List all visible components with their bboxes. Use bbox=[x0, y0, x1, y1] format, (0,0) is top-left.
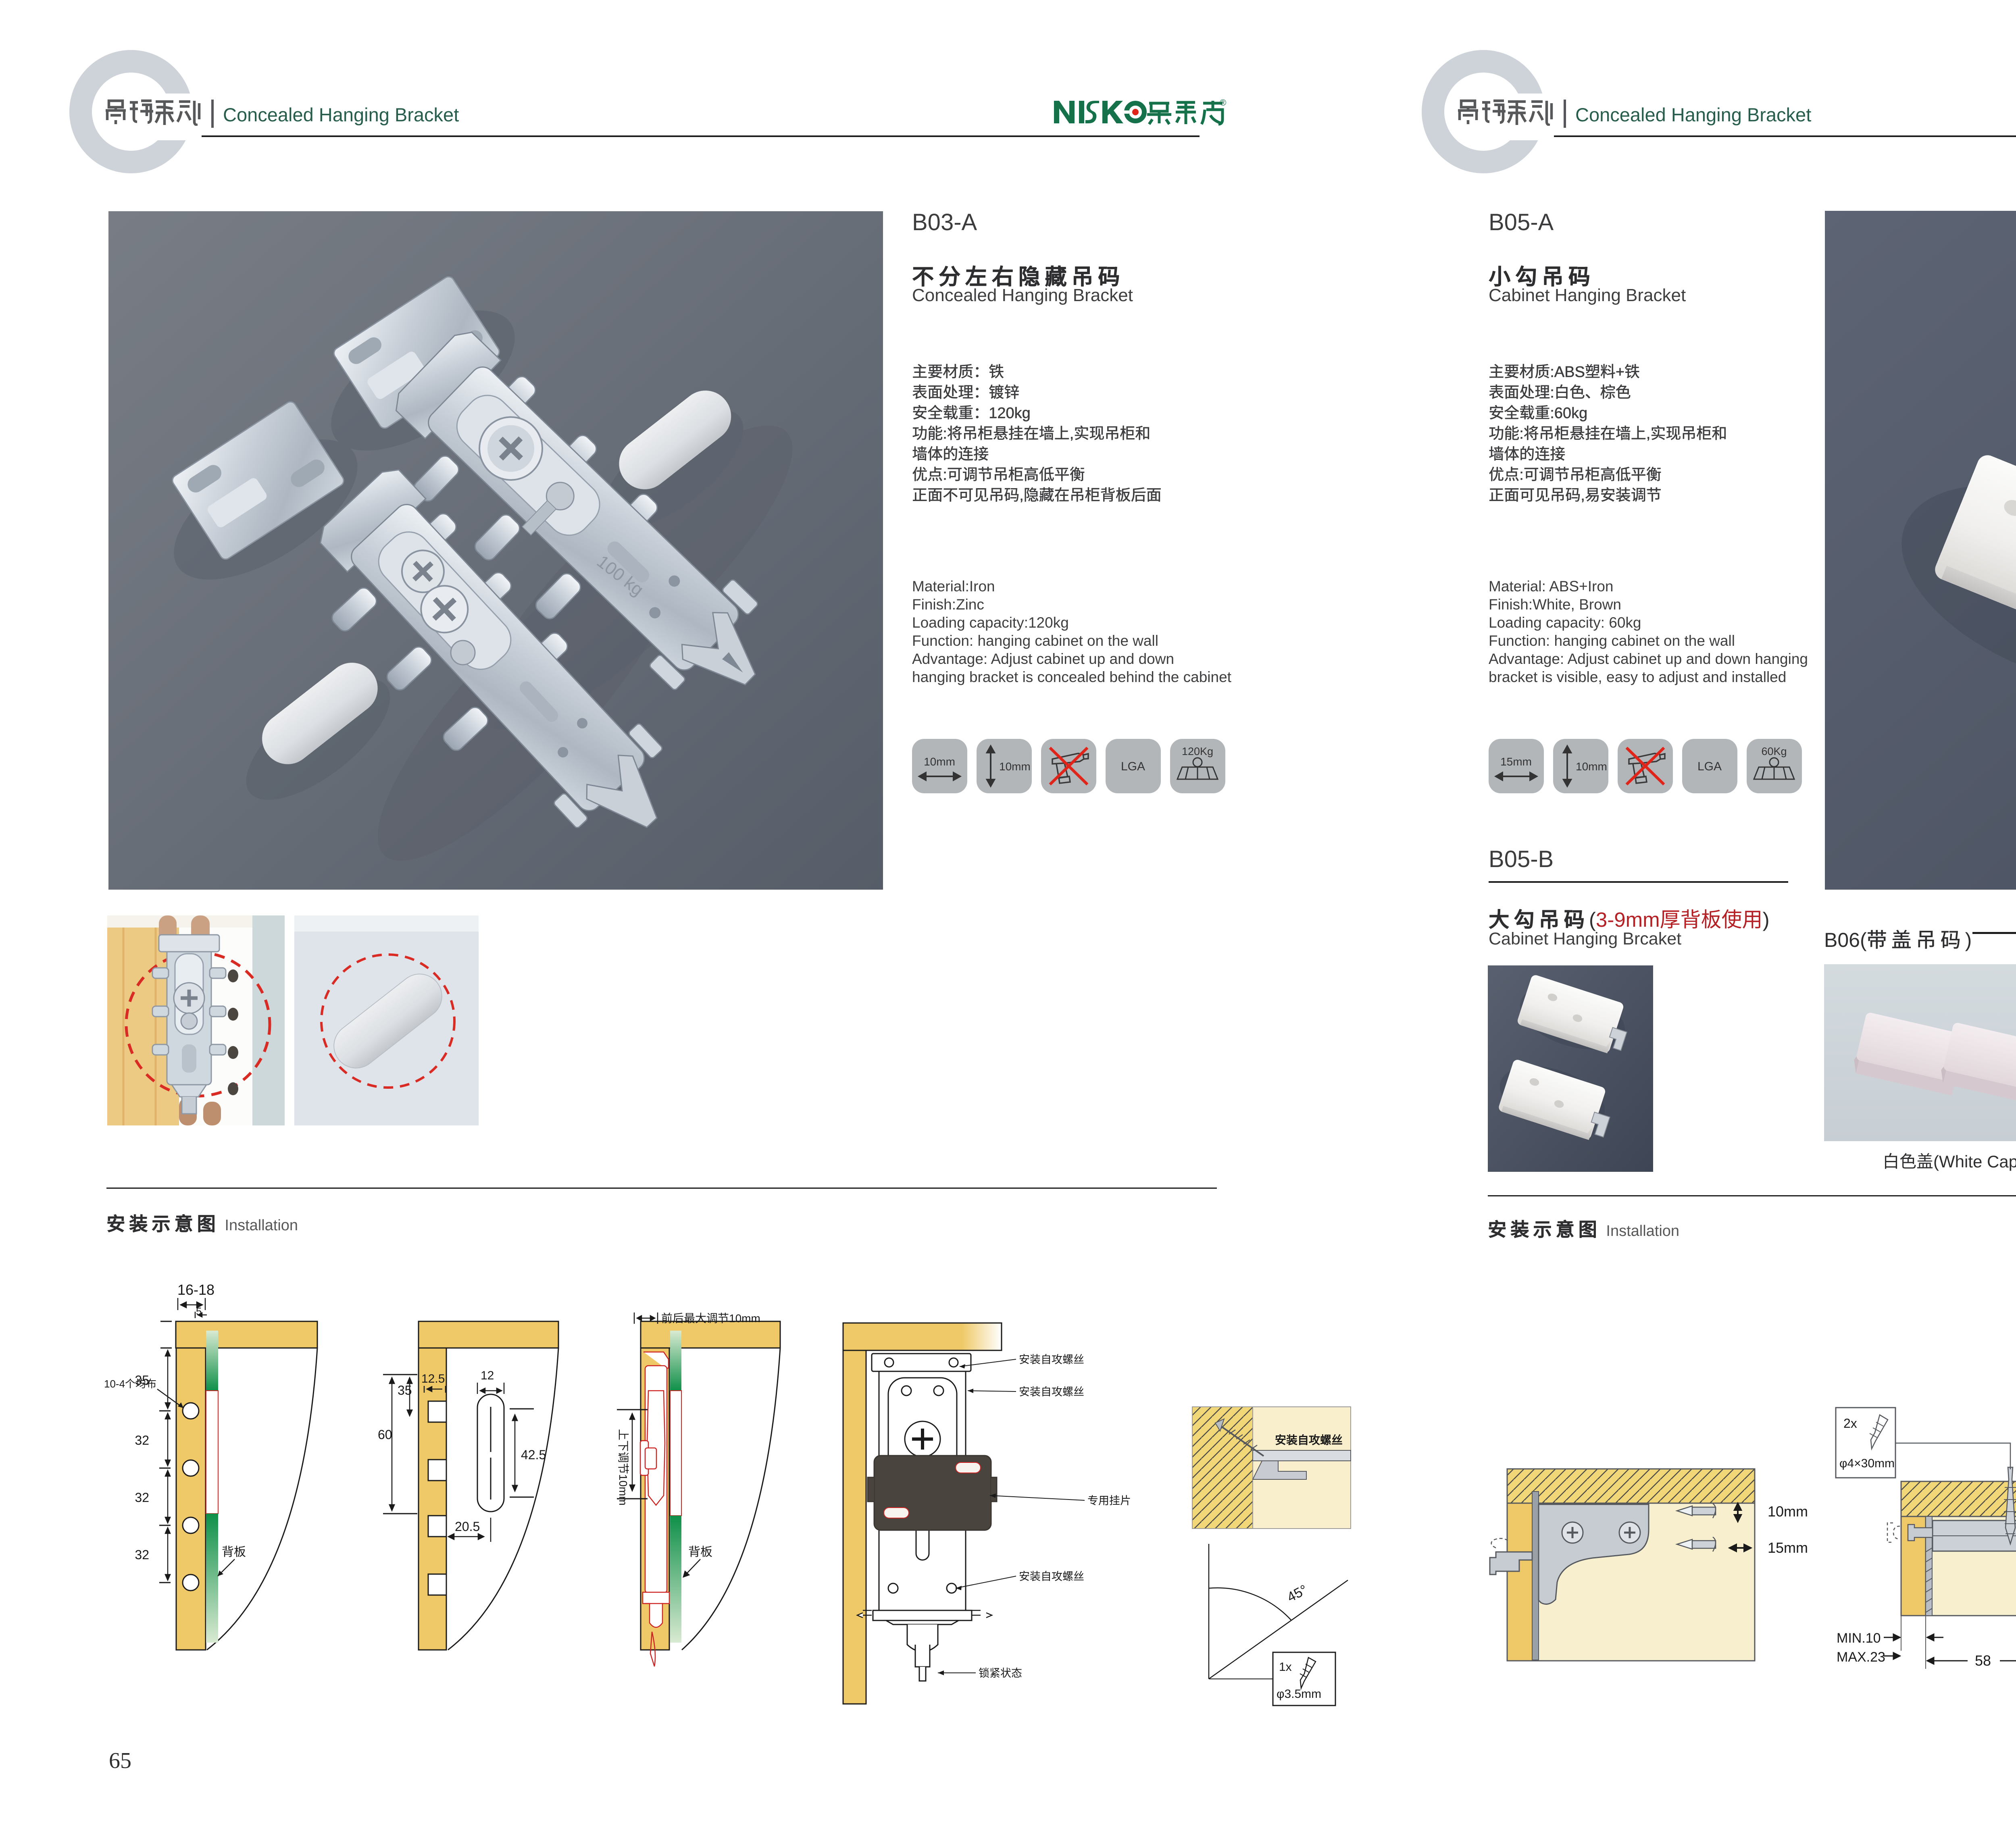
svg-text:1x: 1x bbox=[1279, 1660, 1292, 1674]
svg-text:20.5: 20.5 bbox=[455, 1519, 480, 1534]
svg-text:φ4×30mm: φ4×30mm bbox=[1839, 1457, 1895, 1470]
svg-text:背板: 背板 bbox=[688, 1545, 712, 1559]
svg-text:35: 35 bbox=[398, 1383, 412, 1398]
svg-text:锁紧状态: 锁紧状态 bbox=[979, 1667, 1022, 1679]
svg-text:安装自攻螺丝: 安装自攻螺丝 bbox=[1019, 1570, 1084, 1583]
svg-text:背板: 背板 bbox=[222, 1545, 246, 1559]
svg-text:安装自攻螺丝: 安装自攻螺丝 bbox=[1275, 1433, 1343, 1446]
svg-text:安装自攻螺丝: 安装自攻螺丝 bbox=[1019, 1354, 1084, 1366]
svg-text:15mm: 15mm bbox=[1500, 755, 1532, 768]
svg-text:®: ® bbox=[1220, 98, 1226, 108]
svg-text:5: 5 bbox=[196, 1305, 202, 1317]
svg-text:12.5: 12.5 bbox=[421, 1372, 445, 1385]
svg-text:10-4个均布: 10-4个均布 bbox=[104, 1378, 156, 1390]
svg-text:10mm: 10mm bbox=[924, 755, 955, 768]
svg-text:58: 58 bbox=[1975, 1652, 1991, 1669]
svg-text:MIN.10: MIN.10 bbox=[1837, 1631, 1881, 1646]
svg-text:上下调节10mm: 上下调节10mm bbox=[617, 1429, 629, 1506]
svg-text:16-18: 16-18 bbox=[177, 1281, 215, 1298]
svg-text:60: 60 bbox=[378, 1427, 392, 1442]
svg-text:2x: 2x bbox=[1843, 1416, 1857, 1431]
svg-text:32: 32 bbox=[135, 1547, 149, 1562]
svg-text:MAX.23: MAX.23 bbox=[1837, 1649, 1885, 1665]
svg-text:120Kg: 120Kg bbox=[1182, 745, 1213, 757]
svg-text:10mm: 10mm bbox=[999, 760, 1031, 773]
svg-text:10mm: 10mm bbox=[1768, 1503, 1808, 1520]
svg-text:32: 32 bbox=[135, 1490, 149, 1505]
svg-text:专用挂片: 专用挂片 bbox=[1087, 1495, 1131, 1507]
svg-text:LGA: LGA bbox=[1121, 760, 1145, 773]
svg-text:安装自攻螺丝: 安装自攻螺丝 bbox=[1019, 1386, 1084, 1398]
svg-text:φ3.5mm: φ3.5mm bbox=[1277, 1687, 1321, 1701]
svg-text:42.5: 42.5 bbox=[521, 1448, 546, 1462]
svg-text:15mm: 15mm bbox=[1768, 1539, 1808, 1556]
svg-text:10mm: 10mm bbox=[1576, 760, 1607, 773]
svg-text:12: 12 bbox=[481, 1369, 494, 1382]
svg-text:LGA: LGA bbox=[1697, 760, 1722, 773]
svg-text:32: 32 bbox=[135, 1433, 149, 1448]
svg-text:60Kg: 60Kg bbox=[1761, 745, 1787, 757]
svg-text:45°: 45° bbox=[1285, 1582, 1310, 1605]
svg-text:前后最大调节10mm: 前后最大调节10mm bbox=[661, 1312, 760, 1325]
